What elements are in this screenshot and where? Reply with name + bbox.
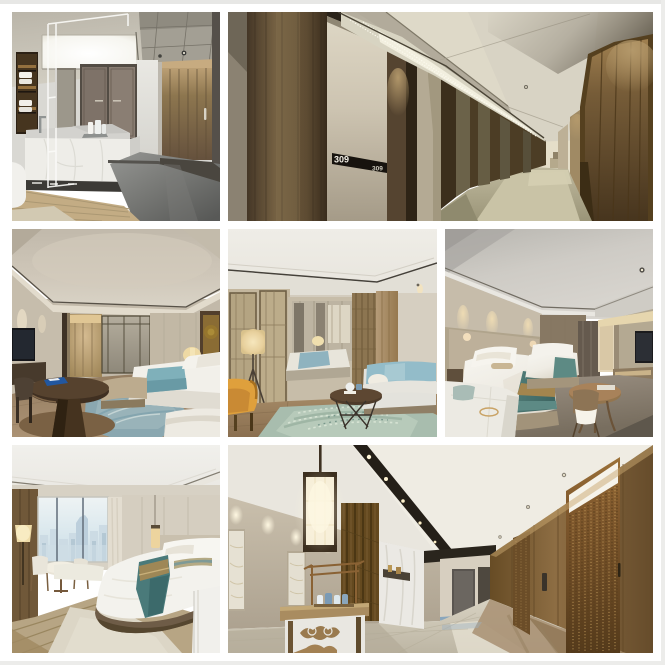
svg-text:309: 309 [334, 155, 349, 165]
svg-text:309: 309 [372, 166, 383, 173]
